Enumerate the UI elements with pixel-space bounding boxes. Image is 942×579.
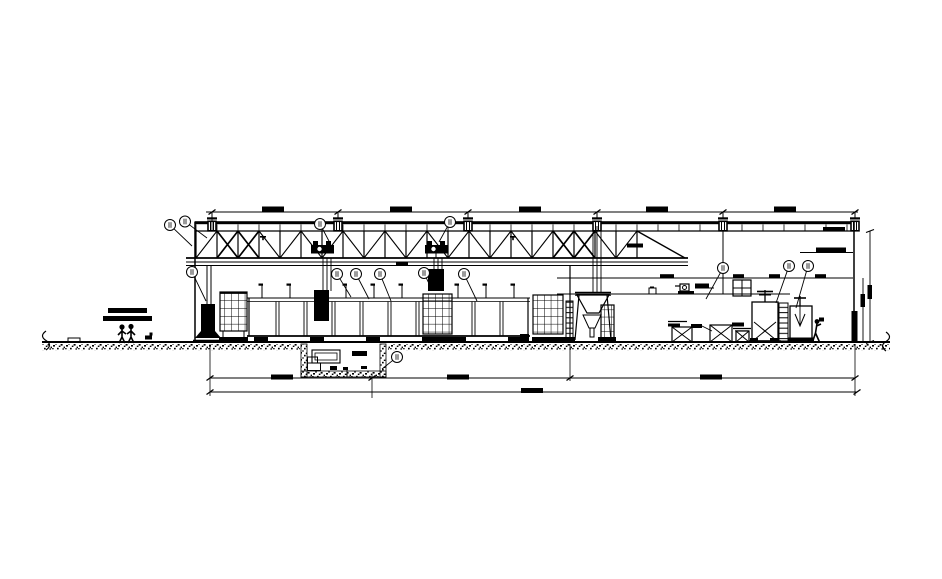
dimension-line-bottom-2: [207, 388, 861, 395]
roof-hangers: [207, 210, 860, 231]
callout-balloon-7: [351, 269, 370, 300]
pump-unit: [649, 284, 714, 295]
crate-2: [691, 324, 732, 342]
callout-balloon-13: [796, 261, 814, 309]
callout-balloon-6: [332, 269, 352, 298]
cad-elevation-drawing: [0, 0, 942, 579]
grating-panel-1: [219, 292, 248, 342]
ground-line: [42, 331, 890, 351]
mixing-tank-1: [749, 290, 781, 341]
callout-balloon-8: [375, 269, 392, 302]
callout-balloon-10: [459, 269, 478, 302]
roof-panel-ticks: [196, 224, 847, 231]
ceiling-label-blob: [396, 262, 408, 266]
ground-hatch: [388, 344, 890, 351]
right-wall: [852, 222, 858, 343]
right-vertical-dimensions: [861, 230, 875, 344]
grating-panel-3: [532, 295, 564, 341]
roof-beam: [195, 221, 858, 231]
drum-crate: [732, 323, 751, 343]
tank-ladder: [779, 303, 788, 341]
callout-balloon-2: [180, 216, 208, 238]
cad-page: [0, 0, 942, 579]
callout-balloon-5: [439, 217, 456, 243]
ground-hatch: [42, 344, 300, 351]
callout-balloon-12: [776, 261, 795, 304]
truss-text-marks: [260, 236, 516, 240]
dimension-line-top: [206, 207, 858, 213]
underground-pit: [301, 344, 386, 398]
worker-right: [813, 318, 825, 343]
pedestal-block: [520, 334, 529, 341]
storage-tank: [193, 266, 223, 341]
left-label-blobs: [103, 308, 152, 321]
worker-pair-left: [118, 324, 135, 343]
access-ladder: [566, 301, 573, 341]
basin-equipment-block: [314, 290, 329, 321]
callout-balloon-3: [187, 267, 207, 302]
crate-1: [668, 322, 692, 343]
dimension-text-blobs: [262, 207, 796, 212]
truss-label-blob: [627, 244, 643, 248]
door-opening: [852, 311, 858, 341]
process-basin: [247, 284, 530, 342]
small-ground-items: [68, 333, 153, 342]
grating-panel-2: [422, 294, 453, 341]
mixing-tank-2: [788, 296, 814, 341]
hanging-cables: [323, 258, 331, 291]
